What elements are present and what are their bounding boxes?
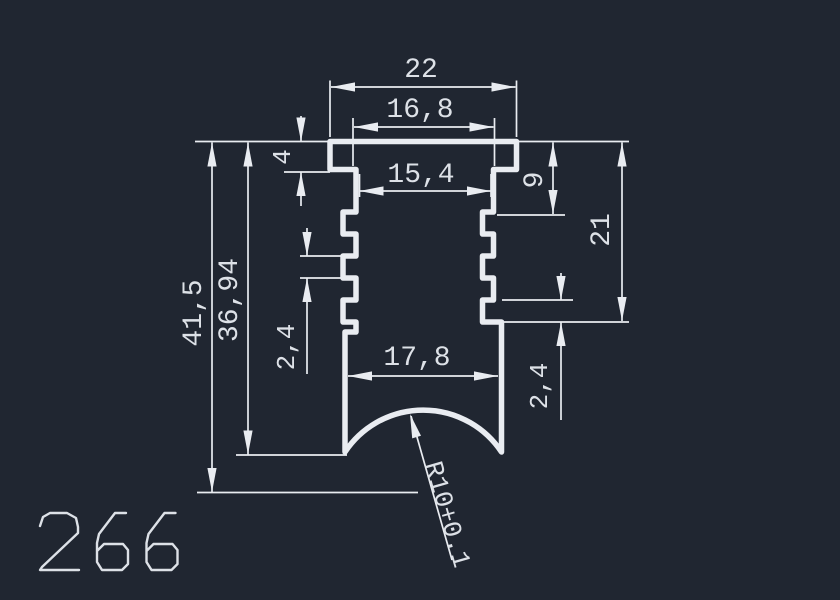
arrow-bottom xyxy=(207,468,216,492)
arrow-top xyxy=(617,143,626,167)
profile-number xyxy=(40,513,178,570)
dim-text-inner-height: 36,94 xyxy=(215,258,246,342)
dim-text-overall-height: 41,5 xyxy=(179,279,210,346)
arrow-bottom xyxy=(296,172,305,196)
arrow-bottom xyxy=(548,190,557,214)
dim-serration-pitch-left: 2,4 xyxy=(272,228,312,374)
arrow-top xyxy=(548,143,557,167)
dim-text-bottom-radius: R10+0.1 xyxy=(417,458,476,571)
leader-arrow xyxy=(410,414,421,438)
arrow-top xyxy=(296,118,305,142)
dim-text-cap-height: 4 xyxy=(268,149,298,165)
dim-neck-depth: 9 xyxy=(520,143,558,215)
arrow-right xyxy=(470,122,494,131)
arrow-top xyxy=(243,143,252,167)
dim-neck-width: 15,4 xyxy=(360,160,492,196)
glyph-2 xyxy=(40,513,79,570)
dim-text-inner-width: 17,8 xyxy=(383,343,450,374)
glyph-6-second xyxy=(147,513,178,570)
dim-inner-width: 17,8 xyxy=(348,343,498,381)
dim-text-neck-depth: 9 xyxy=(520,172,551,189)
arrow-bottom xyxy=(556,322,565,346)
dim-serration-depth: 21 xyxy=(587,143,627,322)
dim-inner-height: 36,94 xyxy=(215,143,253,455)
glyph-6-first xyxy=(97,513,128,570)
arrow-right xyxy=(474,371,498,380)
dim-cap-height: 4 xyxy=(268,116,306,206)
dim-overall-height: 41,5 xyxy=(179,143,217,493)
arrow-left xyxy=(348,371,372,380)
arrow-top xyxy=(302,232,311,256)
arrow-bottom xyxy=(302,278,311,302)
dim-cap-width: 16,8 xyxy=(354,95,494,132)
arrow-bottom xyxy=(243,431,252,455)
dim-bottom-radius: R10+0.1 xyxy=(410,414,476,571)
dim-text-serration-left: 2,4 xyxy=(272,324,302,371)
arrow-left xyxy=(360,186,384,195)
dim-serration-pitch-right: 2,4 xyxy=(525,273,566,420)
arrow-top xyxy=(207,143,216,167)
dim-text-serration-depth: 21 xyxy=(587,213,618,247)
arrow-top xyxy=(556,276,565,300)
dim-text-cap-width: 16,8 xyxy=(386,95,453,126)
arrow-left xyxy=(354,122,378,131)
arrow-bottom xyxy=(617,297,626,321)
technical-drawing: 22 16,8 15,4 17,8 41,5 36,94 xyxy=(0,0,840,600)
arrow-right xyxy=(492,82,516,91)
dim-text-overall-width: 22 xyxy=(404,55,438,86)
arrow-right xyxy=(467,186,491,195)
dim-overall-width: 22 xyxy=(331,55,516,92)
dim-text-serration-right: 2,4 xyxy=(525,363,555,410)
dim-text-neck-width: 15,4 xyxy=(387,160,454,191)
arrow-left xyxy=(331,82,355,91)
cad-canvas: 22 16,8 15,4 17,8 41,5 36,94 xyxy=(0,0,840,600)
